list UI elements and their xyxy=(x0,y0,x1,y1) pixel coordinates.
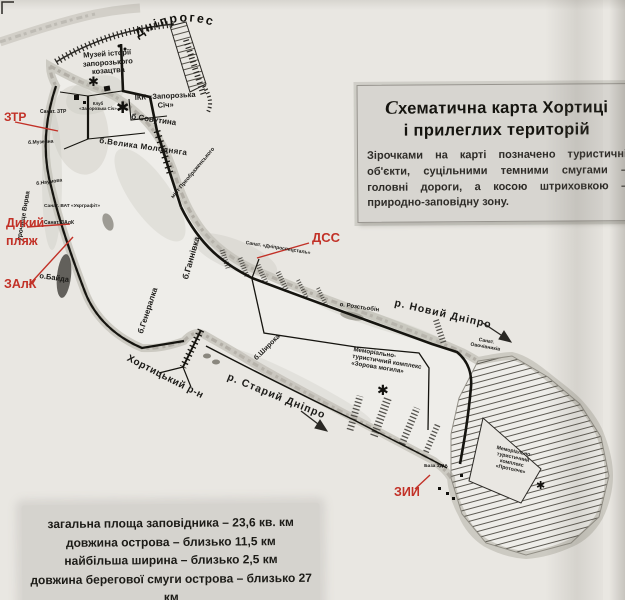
legend-title: Схематична карта Хортиці і прилеглих тер… xyxy=(367,95,625,141)
legend-body-text: Зірочками на карті позначено туристичні … xyxy=(367,147,625,211)
tourist-object-marker: ✱ xyxy=(88,78,99,86)
red-label-zyy: ЗИИ xyxy=(394,485,420,499)
stat-max-width: найбільша ширина – близько 2,5 км xyxy=(28,550,314,571)
scanned-map-page: Дніпрогес Музей історії запорозького коз… xyxy=(0,0,625,600)
tourist-object-marker: ✱ xyxy=(116,104,129,114)
tourist-object-marker: ✱ xyxy=(536,483,545,490)
label-sanatorii-ukrgrafit: Санат. ВАТ «Укрграфіт» xyxy=(44,204,102,210)
label-sanatorii-ztr: Санат. ЗТР xyxy=(40,110,70,116)
label-museum: Музей історії запорозького козацтва xyxy=(78,48,138,78)
label-klub: Клуб «Запорозька Січ» xyxy=(79,102,117,112)
stats-box: загальна площа заповідника – 23,6 кв. км… xyxy=(22,503,321,600)
title-line1: хематична карта Хортиці xyxy=(398,98,608,117)
stat-shoreline-length: довжина берегової смуги острова – близьк… xyxy=(28,569,314,600)
red-label-dss: ДСС xyxy=(312,231,340,246)
red-label-zalk: ЗАлК xyxy=(4,277,36,291)
stat-total-area: загальна площа заповідника – 23,6 кв. км xyxy=(28,513,314,534)
label-baza-zdia: База ЗДІА xyxy=(424,464,448,470)
stat-island-length: довжина острова – близько 11,5 км xyxy=(28,531,314,552)
legend-box: Схематична карта Хортиці і прилеглих тер… xyxy=(357,83,625,223)
tourist-object-marker: ✱ xyxy=(377,386,389,394)
red-label-ztr: ЗТР xyxy=(4,111,26,125)
red-label-dykyi-pliazh: Дикий пляж xyxy=(6,215,54,250)
title-line2: і прилеглих територій xyxy=(367,119,625,141)
label-ikk-zaporozka-sich: ІКК «Запорозька Січ» xyxy=(134,91,197,111)
title-initial: С xyxy=(385,98,398,119)
